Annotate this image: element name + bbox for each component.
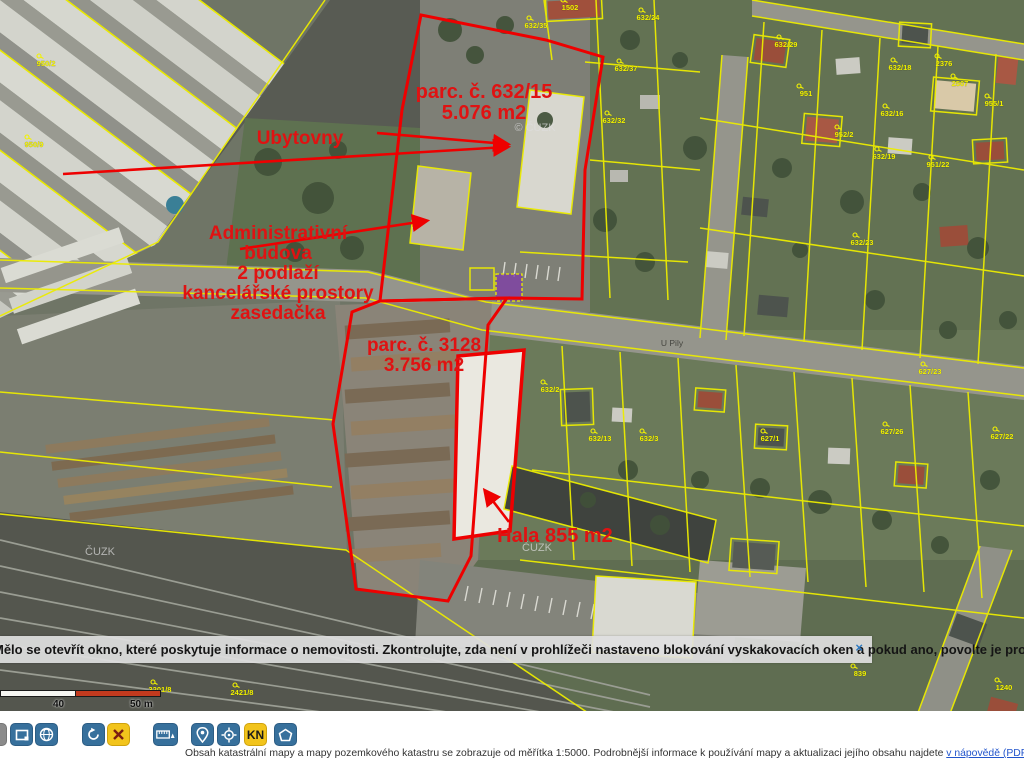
close-icon[interactable]: × <box>855 641 863 654</box>
map-viewer-window: © ČUZKČUZKČUZK U Pily 1502632/35632/2463… <box>0 0 1024 761</box>
parcel-number-label: 632/29 <box>775 40 798 49</box>
parcel-number-label: 632/16 <box>881 109 904 118</box>
cuzk-watermark: ČUZK <box>522 541 553 554</box>
refresh-icon <box>86 727 101 742</box>
parcel-number-label: 1502 <box>562 3 579 12</box>
parcel-number-label: 951 <box>800 89 813 98</box>
pentagon-icon <box>278 728 293 742</box>
parcel-number-label: 2376 <box>936 59 953 68</box>
parcel-number-label: 632/19 <box>873 152 896 161</box>
parcel-number-label: 3201/8 <box>149 685 172 694</box>
status-text: Obsah katastrální mapy a mapy pozemkovéh… <box>185 748 946 759</box>
selection-rect-icon <box>15 728 29 742</box>
location-pin-icon <box>196 727 209 743</box>
parcel-number-label: 950/9 <box>25 140 44 149</box>
crosshair-icon <box>221 727 237 743</box>
street-labels: U Pily <box>661 338 684 348</box>
parcel-number-label: 952/2 <box>835 130 854 139</box>
status-bar: Obsah katastrální mapy a mapy pozemkovéh… <box>185 748 1024 759</box>
polygon-info-button[interactable] <box>274 723 297 746</box>
parcel-number-label: 632/23 <box>851 238 874 247</box>
parcel-number-label: 632/24 <box>637 13 661 22</box>
cuzk-watermark: © ČUZK <box>514 121 556 134</box>
parcel-number-label: 627/1 <box>761 434 780 443</box>
close-tool-button[interactable] <box>107 723 130 746</box>
parcel-number-label: 627/22 <box>991 432 1014 441</box>
kn-button-label: KN <box>247 728 264 742</box>
ruler-icon <box>156 728 175 741</box>
popup-message-text: Mělo se otevřít okno, které poskytuje in… <box>0 642 1024 657</box>
refresh-button[interactable] <box>82 723 105 746</box>
parcel-number-label: 951/22 <box>927 160 950 169</box>
street-name-label: U Pily <box>661 338 684 348</box>
parcel-number-label: 632/32 <box>603 116 626 125</box>
parcel-number-label: 627/23 <box>919 367 942 376</box>
popup-message-bar: Mělo se otevřít okno, které poskytuje in… <box>0 636 872 663</box>
kn-layers-button[interactable]: KN <box>244 723 267 746</box>
select-extent-button[interactable] <box>10 723 33 746</box>
help-pdf-link[interactable]: v nápovědě (PDF) <box>946 748 1024 759</box>
parcel-number-label: 2507 <box>952 79 969 88</box>
parcel-number-label: 632/2 <box>541 385 560 394</box>
bottom-toolbar: KN Obsah katastrální mapy a mapy pozemko… <box>0 711 1024 761</box>
parcel-number-label: 627/26 <box>881 427 904 436</box>
parcel-number-label: 632/37 <box>615 64 638 73</box>
parcel-number-label: 950/2 <box>37 59 56 68</box>
gps-locate-button[interactable] <box>191 723 214 746</box>
parcel-number-label: 1240 <box>996 683 1013 692</box>
parcel-number-label: 632/3 <box>640 434 659 443</box>
globe-icon <box>39 727 54 742</box>
parcel-number-label: 839 <box>854 669 867 678</box>
parcel-number-label: 632/18 <box>889 63 912 72</box>
parcel-number-label: 2421/8 <box>231 688 254 697</box>
measure-button[interactable] <box>153 723 178 746</box>
center-view-button[interactable] <box>217 723 240 746</box>
previous-partial-button[interactable] <box>0 723 7 746</box>
parcel-number-label: 632/13 <box>589 434 612 443</box>
parcel-number-label: 955/1 <box>985 99 1004 108</box>
overview-map-button[interactable] <box>35 723 58 746</box>
parcel-number-label: 632/35 <box>525 21 548 30</box>
x-icon <box>112 728 125 741</box>
cuzk-watermark: ČUZK <box>85 545 116 558</box>
